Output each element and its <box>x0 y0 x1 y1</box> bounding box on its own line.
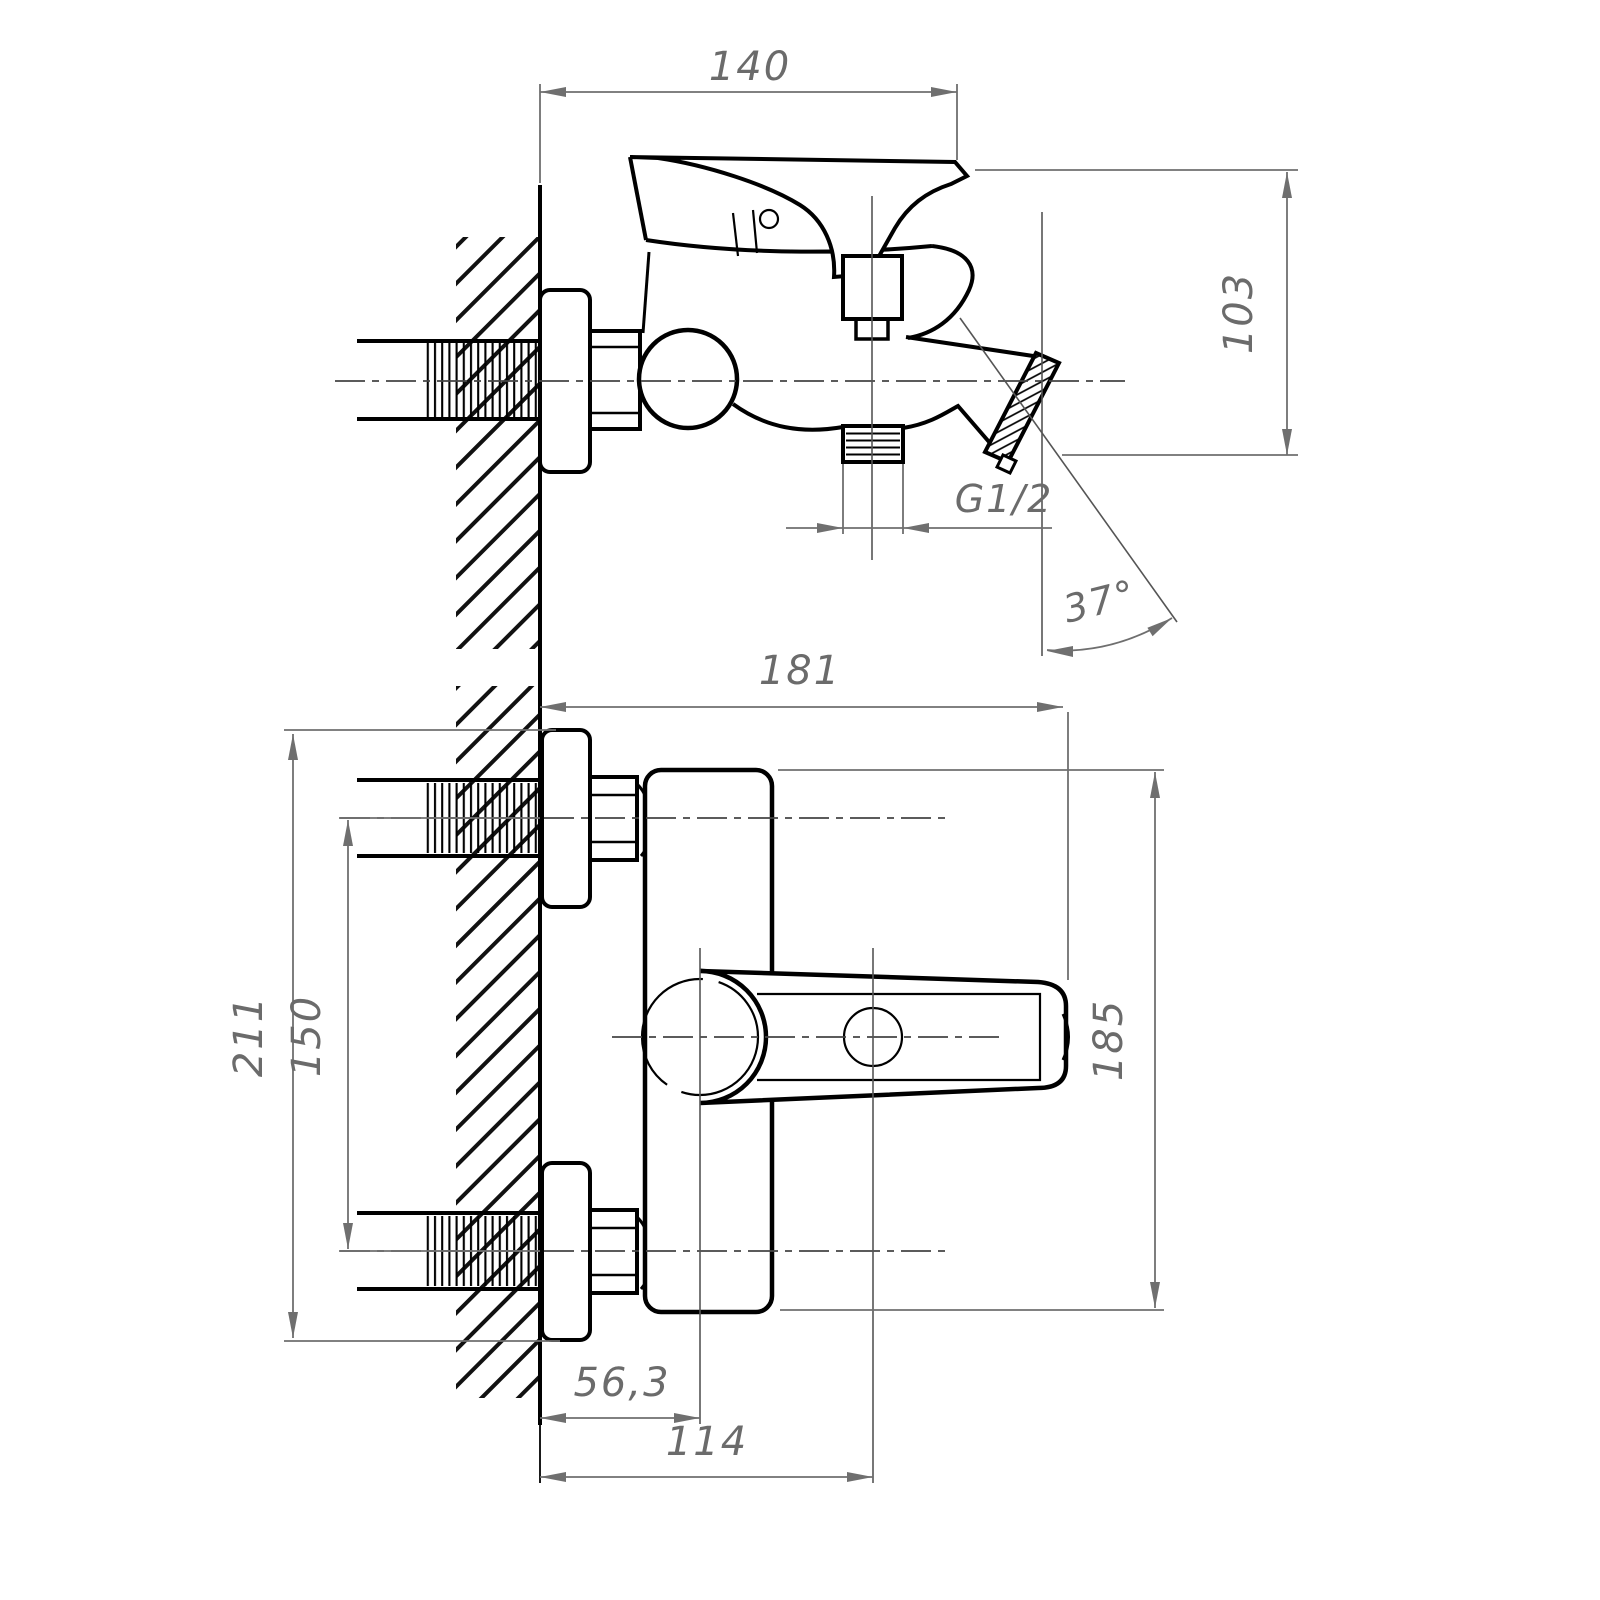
spout-underside-left <box>733 404 843 430</box>
cartridge-pin <box>760 210 778 228</box>
dim-handle-offset: 56,3 <box>540 1360 700 1423</box>
hex-nut <box>590 331 640 429</box>
dim-label-185: 185 <box>1086 999 1132 1081</box>
pipe-thread <box>424 343 540 417</box>
spout-underside-right <box>903 406 996 450</box>
spout-top-edge <box>906 337 1040 357</box>
spout-axis-line <box>960 318 1177 622</box>
technical-drawing-page: 140 103 G1/2 37° <box>0 0 1600 1600</box>
neck-line-2 <box>753 210 757 253</box>
body-left-edge <box>643 252 649 333</box>
dim-label-140: 140 <box>709 44 791 90</box>
dim-diverter-offset: 114 <box>540 1419 873 1482</box>
shower-outlet <box>843 426 903 462</box>
dim-label-37deg: 37° <box>1059 571 1141 631</box>
dim-label-181: 181 <box>759 648 841 694</box>
faucet-body <box>645 770 772 1312</box>
wall-hatching-top <box>456 237 540 649</box>
hood-right-curve <box>908 246 973 338</box>
dim-label-g12: G1/2 <box>955 477 1054 521</box>
dim-spout-angle: 37° <box>1047 571 1172 657</box>
dim-label-103: 103 <box>1216 272 1262 354</box>
dim-label-150: 150 <box>284 995 330 1077</box>
spout-aerator <box>985 353 1059 473</box>
dim-label-114: 114 <box>666 1419 748 1465</box>
handle-front-edge <box>630 157 646 240</box>
ball-joint <box>639 330 737 428</box>
dim-label-211: 211 <box>226 995 272 1077</box>
dim-label-56-3: 56,3 <box>573 1360 670 1406</box>
dim-outlet-thread: G1/2 <box>786 464 1053 534</box>
lever-handle <box>630 157 967 277</box>
bath-mixer-drawing: 140 103 G1/2 37° <box>0 0 1600 1600</box>
